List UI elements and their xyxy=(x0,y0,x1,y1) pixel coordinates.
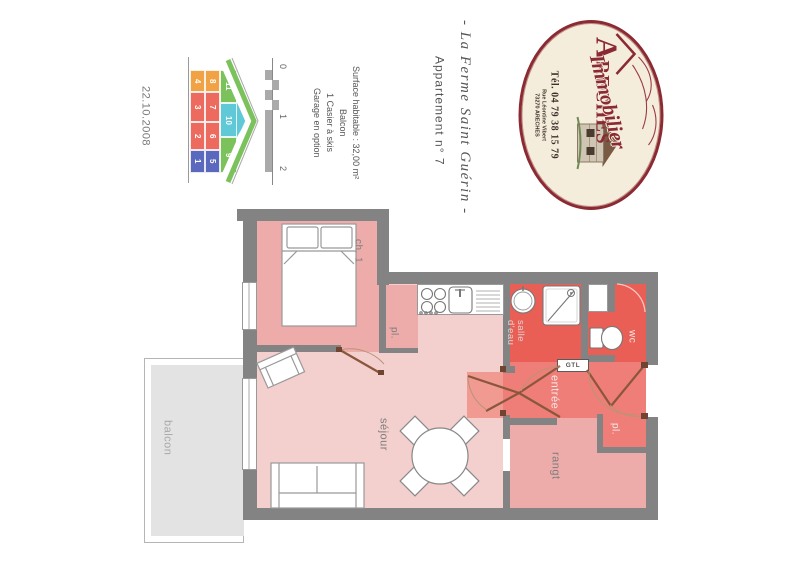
wall xyxy=(608,284,615,312)
key-plan-unit-10: 10 xyxy=(220,103,237,137)
wall xyxy=(588,355,615,362)
surface-info-block: Surface habitable : 32,00 m² Balcon 1 Ca… xyxy=(310,56,362,190)
logo-address-street: Rue Léontine Vibert xyxy=(540,23,546,207)
scale-label-1: 1 xyxy=(278,114,288,119)
wall xyxy=(379,285,386,352)
residence-title: - La Ferme Saint Guérin - xyxy=(456,20,472,215)
wall xyxy=(646,272,658,365)
scale-seg xyxy=(272,80,279,90)
info-balcon: Balcon xyxy=(336,56,349,190)
key-plan-unit-11: 11 xyxy=(220,70,237,103)
key-plan-unit-label: 10 xyxy=(224,116,233,125)
key-plan-unit-6: 6 xyxy=(205,122,220,150)
info-casier: 1 Casier à skis xyxy=(323,56,336,190)
wall xyxy=(379,348,418,353)
scale-seg xyxy=(265,120,272,172)
info-surface: Surface habitable : 32,00 m² xyxy=(349,56,362,190)
storage-opening xyxy=(503,439,510,471)
wall xyxy=(237,209,389,221)
wall xyxy=(597,447,646,453)
label-bedroom: ch. 1 xyxy=(352,239,363,263)
key-plan-unit-label: 6 xyxy=(208,134,217,138)
wall xyxy=(243,330,257,378)
key-plan-unit-2: 2 xyxy=(190,122,205,150)
logo-phone: Tél. 04 79 38 15 79 xyxy=(548,23,559,207)
info-garage: Garage en option xyxy=(310,56,323,190)
wall xyxy=(508,418,557,425)
wc-niche xyxy=(588,284,608,312)
floor-plan-sheet: 22.10.2008 4837261511109 0 1 2 Surface h… xyxy=(0,0,800,566)
wall xyxy=(243,209,257,282)
label-closet2: pl. xyxy=(609,423,620,435)
scale-seg xyxy=(265,90,272,100)
scale-seg xyxy=(265,70,272,80)
room-bedroom xyxy=(250,215,387,352)
key-plan-unit-label: 8 xyxy=(208,79,217,83)
wall xyxy=(243,470,257,520)
key-plan-unit-label: 3 xyxy=(193,105,202,109)
label-balcony: balcon xyxy=(161,420,173,455)
key-plan-unit-4: 4 xyxy=(190,70,205,92)
scale-seg xyxy=(265,110,272,120)
label-shower-room: salle d'eau xyxy=(505,320,525,370)
key-plan-unit-label: 11 xyxy=(224,82,233,90)
wall xyxy=(244,508,658,520)
key-plan-unit-7: 7 xyxy=(205,92,220,122)
wall xyxy=(257,345,341,352)
label-closet1: pl. xyxy=(388,327,399,339)
key-plan-unit-1: 1 xyxy=(190,150,205,173)
wall xyxy=(646,417,658,520)
balcony-glass-door xyxy=(242,378,257,470)
wall xyxy=(581,284,588,360)
scale-seg xyxy=(272,100,279,110)
label-living: séjour xyxy=(377,418,389,451)
key-plan-unit-label: 7 xyxy=(208,105,217,109)
apartment-number-title: Appartement n° 7 xyxy=(433,56,446,166)
key-plan-unit-label: 1 xyxy=(193,159,202,163)
logo-address-city: 73270 ARECHES xyxy=(533,23,539,207)
bedroom-window xyxy=(242,282,257,330)
scale-label-2: 2 xyxy=(278,166,288,171)
key-plan-unit-label: 4 xyxy=(193,79,202,83)
key-plan-unit-9: 9 xyxy=(220,137,237,173)
key-plan-unit-8: 8 xyxy=(205,70,220,92)
key-plan-unit-label: 5 xyxy=(208,159,217,163)
key-plan-unit-label: 9 xyxy=(224,153,233,157)
key-plan-unit-label: 2 xyxy=(193,134,202,138)
agency-logo: ARECHES Immobilier Tél. 04 79 38 15 79 R… xyxy=(518,20,663,210)
label-wc: wc xyxy=(626,330,637,343)
room-entry-open xyxy=(467,372,503,418)
scale-line xyxy=(272,58,273,185)
wall xyxy=(377,272,658,284)
key-plan-ground-line xyxy=(188,57,189,183)
key-plan-unit-3: 3 xyxy=(190,92,205,122)
gtl-box: GTL xyxy=(557,359,589,372)
kitchen-counter xyxy=(417,284,504,315)
key-plan-unit10-point xyxy=(237,103,247,137)
key-plan-unit-5: 5 xyxy=(205,150,220,173)
scale-label-0: 0 xyxy=(278,64,288,69)
date-label: 22.10.2008 xyxy=(139,86,151,146)
logo-oval: ARECHES Immobilier Tél. 04 79 38 15 79 R… xyxy=(518,20,663,210)
label-entry: entrée xyxy=(548,375,560,409)
label-storage: rangt xyxy=(549,452,561,480)
